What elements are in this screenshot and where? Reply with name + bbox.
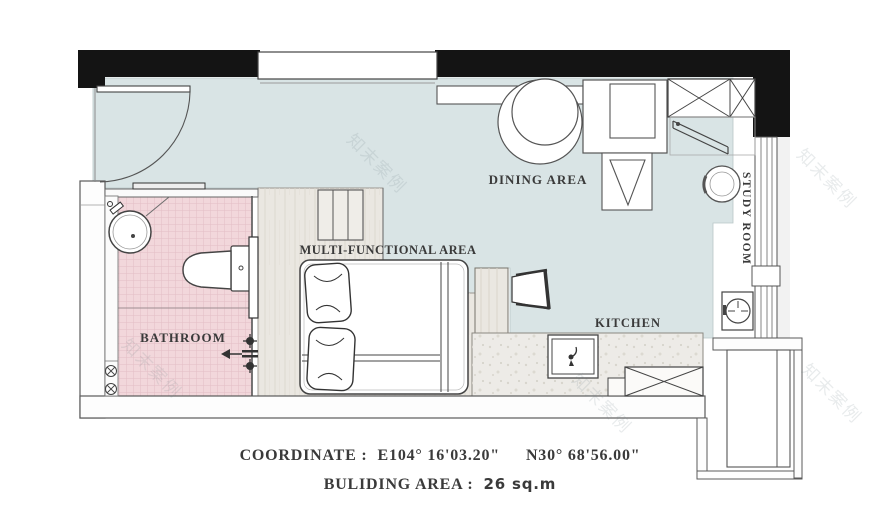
coordinate-label: COORDINATE :	[240, 447, 368, 464]
label-study-room: STUDY ROOM	[736, 172, 752, 282]
building-area-value: 26 sq.m	[484, 475, 557, 493]
building-area-line: BULIDING AREA :26 sq.m	[0, 475, 880, 494]
dining-chair-icon	[602, 153, 652, 210]
lounge-chair-icon	[512, 270, 549, 309]
tall-cabinet	[583, 80, 667, 153]
bedside-table	[475, 268, 508, 337]
label-bathroom: BATHROOM	[128, 330, 238, 346]
study-appliance-icon	[722, 292, 753, 330]
coordinate-east-value: E104° 16'03.20"	[378, 447, 500, 464]
kitchen-sink-icon	[548, 335, 598, 378]
storage-steps-icon	[318, 190, 363, 240]
window-icon	[258, 52, 437, 83]
label-dining-area: DINING AREA	[468, 172, 608, 188]
study-window-icon	[752, 137, 790, 338]
coordinate-north-value: N30° 68'56.00"	[526, 447, 640, 464]
wardrobe-icon	[668, 79, 755, 117]
label-kitchen: KITCHEN	[578, 316, 678, 331]
dining-table-icon	[498, 79, 582, 164]
coordinate-line: COORDINATE :E104° 16'03.20"N30° 68'56.00…	[0, 447, 880, 465]
building-area-label: BULIDING AREA :	[324, 476, 474, 493]
study-chair-icon	[704, 166, 740, 202]
floor-plan-canvas: DINING AREA MULTI-FUNCTIONAL AREA KITCHE…	[0, 0, 880, 530]
label-multi-functional-area: MULTI-FUNCTIONAL AREA	[288, 243, 488, 258]
